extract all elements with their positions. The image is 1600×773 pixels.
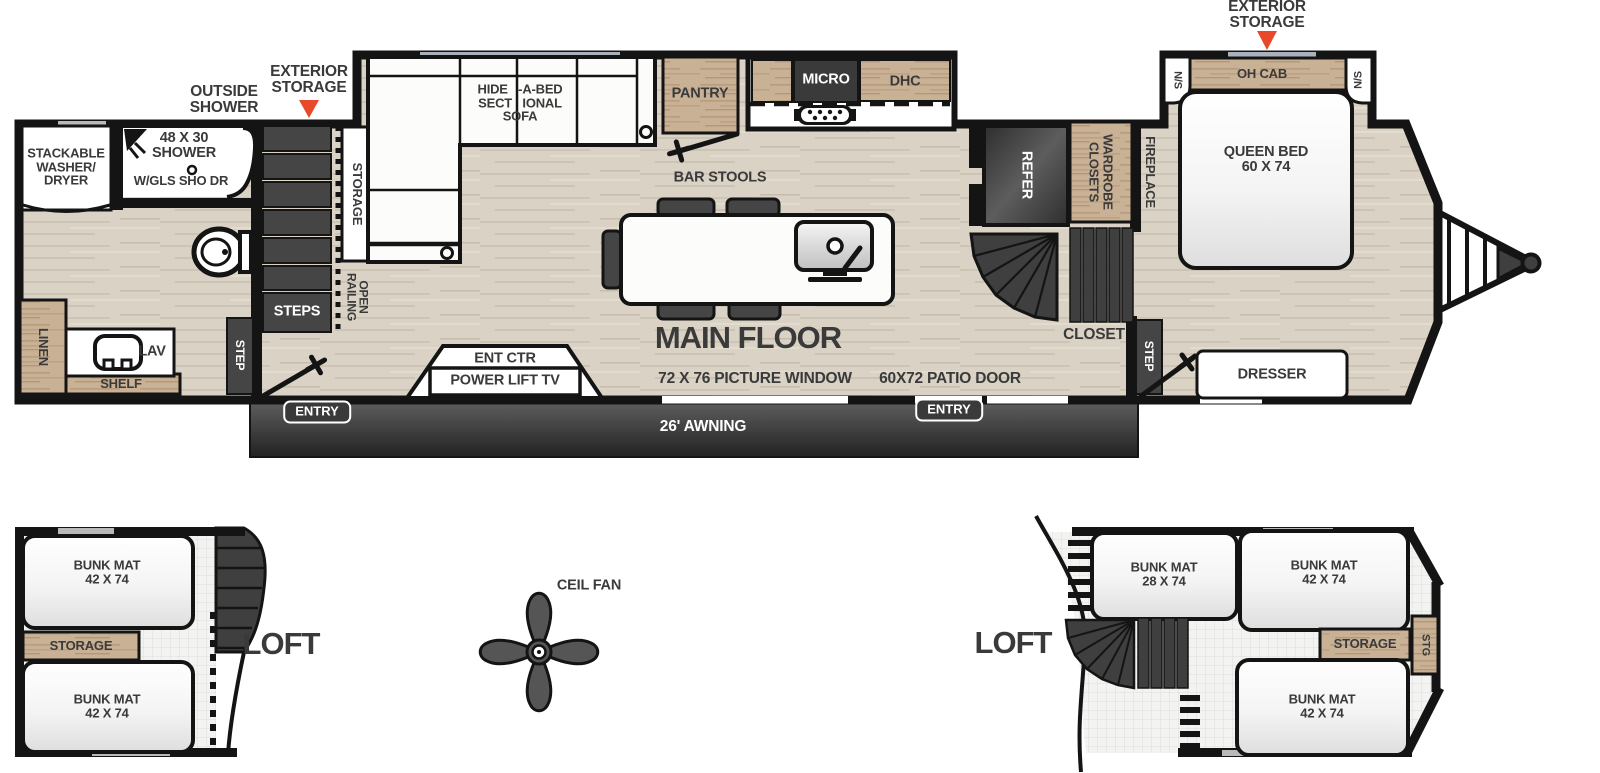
main-floor-title: MAIN FLOOR [655,322,841,354]
pantry-label: PANTRY [672,86,729,101]
storage-cabinet-label: STORAGE [350,163,364,226]
shower-door-label: W/GLS SHO DR [134,174,228,188]
awning-label: 26' AWNING [660,419,746,435]
sofa-label: HIDE -A-BED SECT IONAL SOFA [478,83,563,124]
kitchen-island [603,199,893,319]
exterior-storage-marker-left [299,100,319,118]
queen-bed [1180,92,1352,268]
exterior-storage-marker-right [1257,31,1277,50]
loft-right-title: LOFT [975,627,1052,659]
exterior-storage-label-left: EXTERIOR STORAGE [270,64,348,96]
refer-label: REFER [1018,151,1033,199]
bar-stools-label: BAR STOOLS [674,170,767,185]
loft-right-storage-label: STORAGE [1334,637,1397,651]
patio-door-label: 60X72 PATIO DOOR [879,371,1021,387]
loft-left-storage-label: STORAGE [50,639,113,653]
lav-sink-icon [95,336,141,369]
dresser-label: DRESSER [1238,367,1307,382]
picture-window [662,396,848,404]
shower-label: 48 X 30 SHOWER [152,131,216,161]
ns-right-label: N/S [1353,71,1364,89]
washer-dryer-label: STACKABLE WASHER/ DRYER [27,147,104,188]
hitch [1440,213,1540,310]
bar-stool [603,231,621,288]
open-railing-label: OPEN RAILING [345,273,370,321]
lav-label: LAV [138,344,165,359]
exterior-storage-label-right: EXTERIOR STORAGE [1228,0,1306,31]
power-lift-tv-label: POWER LIFT TV [450,373,559,388]
ent-ctr-label: ENT CTR [474,351,535,366]
ceiling-fan [480,593,598,711]
queen-bed-label: QUEEN BED 60 X 74 [1224,145,1308,175]
entry-tab-rear: ENTRY [915,399,983,422]
picture-window-label: 72 X 76 PICTURE WINDOW [658,371,852,387]
closet-label: CLOSET [1063,327,1125,343]
shelf-label: SHELF [100,377,142,391]
dhc-label: DHC [890,74,921,89]
loft-right-bunk-top-label: BUNK MAT 42 X 74 [1291,558,1358,585]
loft-left-title: LOFT [243,628,320,660]
entry-tab-front: ENTRY [283,401,351,424]
loft-left-bunk-bottom-label: BUNK MAT 42 X 74 [74,692,141,719]
step-left-label: STEP [234,340,246,371]
kitchen [748,57,954,129]
hitch-ball [1523,255,1540,272]
outside-shower-label: OUTSIDE SHOWER [190,84,259,116]
loft-right-bunk-side-label: BUNK MAT 28 X 74 [1131,560,1198,587]
fireplace-label: FIREPLACE [1143,136,1157,208]
toilet-tank [240,232,251,272]
floorplan-canvas: OUTSIDE SHOWER EXTERIOR STORAGE EXTERIOR… [0,0,1600,773]
linen-label: LINEN [36,328,50,366]
loft-right-stg-label: STG [1419,634,1430,656]
micro-label: MICRO [802,72,849,87]
oh-cab-label: OH CAB [1237,67,1287,81]
ns-left-label: N/S [1171,71,1182,89]
steps-label: STEPS [274,304,321,319]
kitchen-cabinet [752,60,792,102]
wardrobe-label: WARDROBE CLOSETS [1087,134,1114,210]
step-right-label: STEP [1143,341,1155,372]
ceil-fan-label: CEIL FAN [557,578,621,593]
loft-left-bunk-top-label: BUNK MAT 42 X 74 [74,558,141,585]
loft-right-bunk-bottom-label: BUNK MAT 42 X 74 [1289,692,1356,719]
